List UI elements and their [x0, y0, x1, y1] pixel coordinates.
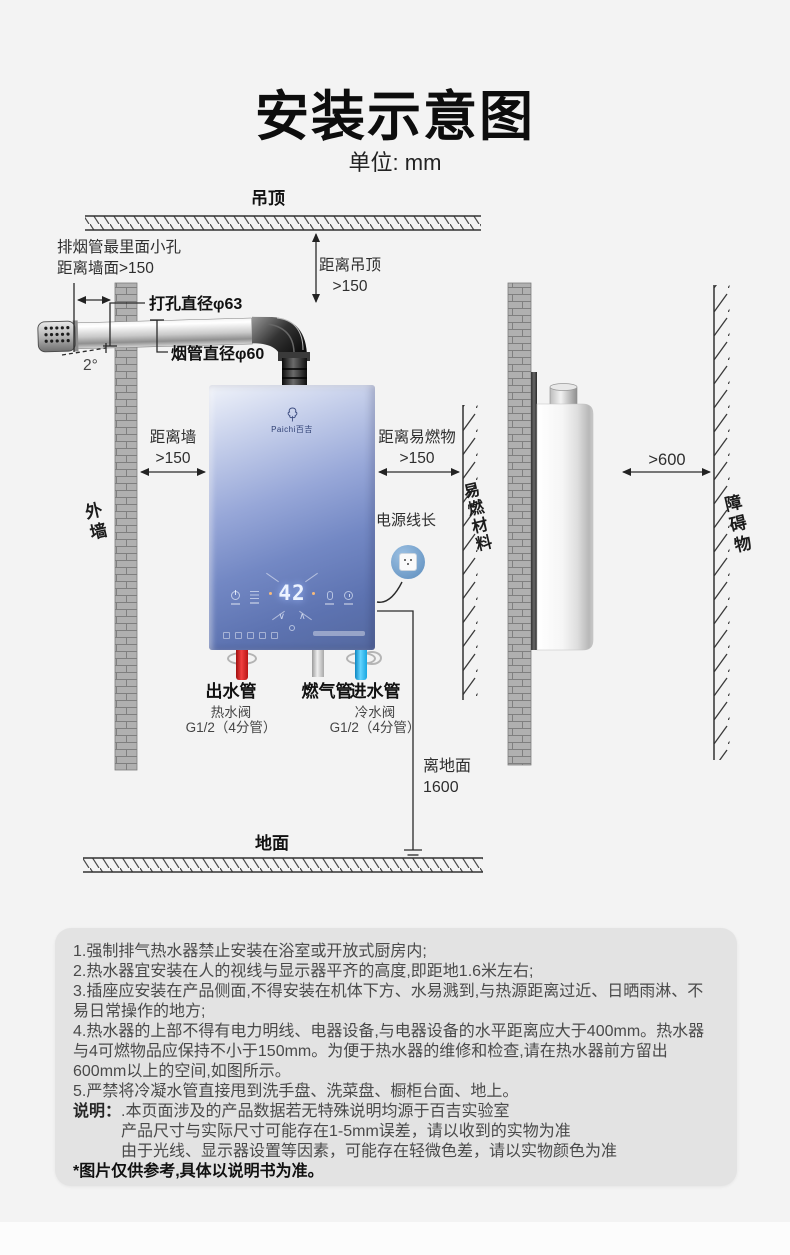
ground-label: 地面 — [244, 833, 300, 854]
dist-wall-label: 距离墙 — [132, 427, 214, 448]
dist-ceiling-label: 距离吊顶 — [309, 255, 391, 276]
dist-flammable-label: 距离易燃物 — [366, 427, 468, 448]
remark-label: 说明： — [73, 1102, 121, 1162]
note-item-1: 1.强制排气热水器禁止安装在浴室或开放式厨房内; — [73, 942, 719, 962]
inlet-pipe-label: 进水管 — [339, 681, 411, 702]
remark-block: 说明： .本页面涉及的产品数据若无特殊说明均源于百吉实验室 产品尺寸与实际尺寸可… — [73, 1102, 719, 1162]
hot-water-outlet-pipe — [236, 650, 248, 680]
hole-diameter-label: 打孔直径φ63 — [149, 294, 242, 315]
height-label: 离地面 — [423, 756, 471, 777]
ceiling-label: 吊顶 — [240, 188, 296, 209]
height-value: 1600 — [423, 777, 471, 798]
remark-lines: .本页面涉及的产品数据若无特殊说明均源于百吉实验室 产品尺寸与实际尺寸可能存在1… — [121, 1102, 617, 1162]
note-item-3: 3.插座应安装在产品侧面,不得安装在机体下方、水易溅到,与热源距离过近、日晒雨淋… — [73, 982, 719, 1022]
note-item-2: 2.热水器宜安装在人的视线与显示器平齐的高度,即距地1.6米左右; — [73, 962, 719, 982]
heater-control-panel: 42 — [209, 571, 375, 635]
remark-line-1: .本页面涉及的产品数据若无特殊说明均源于百吉实验室 — [121, 1102, 617, 1122]
tilt-angle-label: 2° — [83, 355, 98, 376]
feature-icon — [247, 632, 254, 639]
note-item-4: 4.热水器的上部不得有电力明线、电器设备,与电器设备的水平距离应大于400mm。… — [73, 1022, 719, 1082]
temp-up-icon — [299, 611, 306, 622]
water-heater-front: Paichi百吉 42 — [209, 385, 375, 650]
hot-valve-spec: G1/2（4分管） — [185, 717, 277, 738]
gas-supply-pipe — [312, 650, 324, 677]
ground-hatch — [83, 858, 483, 872]
vent-hole-note: 排烟管最里面小孔 距离墙面>150 — [57, 237, 181, 279]
outer-wall-brick — [115, 283, 137, 770]
vent-hole-note-line1: 排烟管最里面小孔 — [57, 237, 181, 258]
note-item-5: 5.严禁将冷凝水管直接甩到洗手盘、洗菜盘、橱柜台面、地上。 — [73, 1082, 719, 1102]
temperature-value: 42 — [278, 581, 305, 605]
installation-diagram-page: 安装示意图 单位: mm — [0, 0, 790, 1255]
model-text-bar — [313, 631, 365, 636]
remark-line-3: 由于光线、显示器设置等因素，可能存在轻微色差，请以实物颜色为准 — [121, 1142, 617, 1162]
dist-ceiling-callout: 距离吊顶 >150 — [309, 255, 391, 297]
power-cord-label: 电源线长 — [376, 510, 436, 531]
brand-text: Paichi百吉 — [271, 424, 313, 435]
cold-water-inlet-pipe — [355, 650, 367, 680]
icon-caption-bar — [344, 603, 353, 605]
socket-face-icon — [399, 553, 417, 571]
dist-flammable-callout: 距离易燃物 >150 — [366, 427, 468, 469]
feature-icon — [271, 632, 278, 639]
vent-hole-note-line2: 距离墙面>150 — [57, 258, 181, 279]
flue-diameter-label: 烟管直径φ60 — [171, 344, 264, 365]
page-bottom-strip — [0, 1222, 790, 1255]
dist-ceiling-value: >150 — [309, 276, 391, 297]
feature-icons-row — [223, 632, 278, 639]
heater-brand: Paichi百吉 — [209, 407, 375, 435]
power-cord — [377, 582, 402, 602]
display-dot-right — [312, 592, 315, 595]
brand-emblem-icon — [286, 407, 299, 422]
ceiling-hatch — [85, 216, 481, 230]
feature-icon — [223, 632, 230, 639]
standby-icon — [289, 625, 295, 631]
feature-icon — [259, 632, 266, 639]
remark-line-2: 产品尺寸与实际尺寸可能存在1-5mm误差，请以收到的实物为准 — [121, 1122, 617, 1142]
footnote: *图片仅供参考,具体以说明书为准。 — [73, 1162, 719, 1182]
display-dot-left — [269, 592, 272, 595]
voice-icon — [327, 591, 333, 600]
heater-side-view — [531, 372, 593, 650]
power-socket — [391, 545, 425, 579]
height-callout: 离地面 1600 — [423, 756, 471, 798]
dist-wall-value: >150 — [132, 448, 214, 469]
notes-box: 1.强制排气热水器禁止安装在浴室或开放式厨房内; 2.热水器宜安装在人的视线与显… — [55, 928, 737, 1186]
dist-wall-callout: 距离墙 >150 — [132, 427, 214, 469]
temp-down-icon — [278, 611, 285, 622]
panel-right-icons — [325, 591, 353, 605]
feature-icon — [235, 632, 242, 639]
dist-obstacle-value: >600 — [622, 450, 712, 471]
icon-caption-bar — [325, 603, 334, 605]
side-wall-brick — [508, 283, 531, 765]
dist-flammable-value: >150 — [366, 448, 468, 469]
cold-valve-spec: G1/2（4分管） — [329, 717, 421, 738]
timer-icon — [344, 591, 353, 600]
outlet-pipe-label: 出水管 — [195, 681, 267, 702]
temp-adjust-icons — [209, 611, 375, 622]
